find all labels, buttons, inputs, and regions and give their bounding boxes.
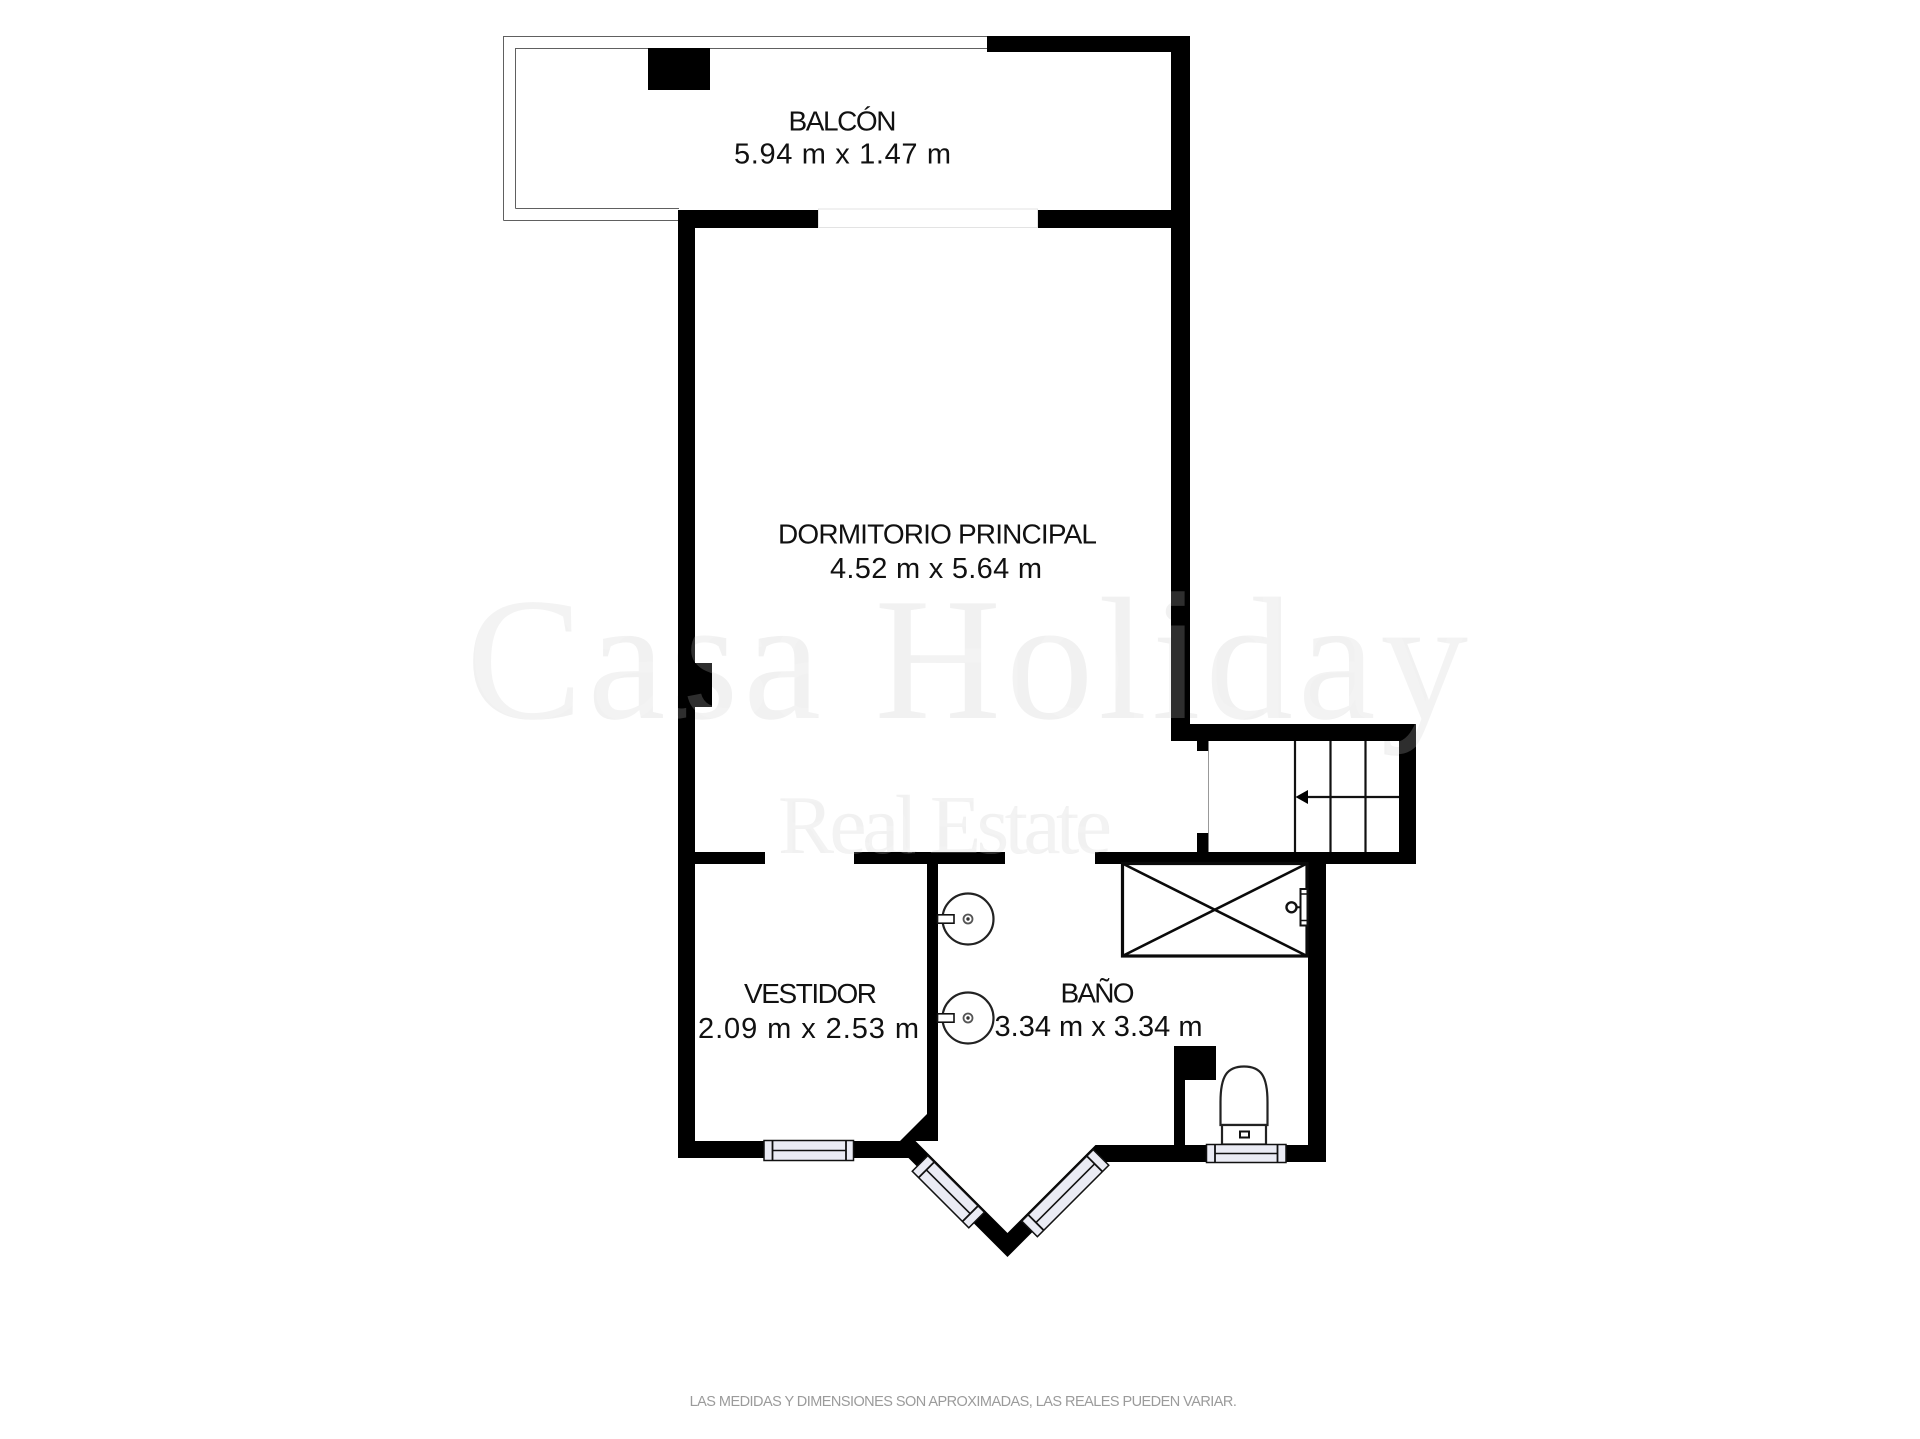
svg-text:2.09 m x 2.53 m: 2.09 m x 2.53 m: [698, 1013, 919, 1045]
svg-text:3.34 m x 3.34 m: 3.34 m x 3.34 m: [995, 1011, 1203, 1043]
svg-text:Casa Holiday: Casa Holiday: [466, 561, 1469, 756]
svg-text:Real Estate: Real Estate: [778, 777, 1112, 871]
svg-text:LAS MEDIDAS Y DIMENSIONES SON: LAS MEDIDAS Y DIMENSIONES SON APROXIMADA…: [690, 1394, 1237, 1410]
svg-text:5.94 m x 1.47 m: 5.94 m x 1.47 m: [734, 139, 951, 171]
svg-text:BAÑO: BAÑO: [1061, 978, 1135, 1009]
svg-text:VESTIDOR: VESTIDOR: [744, 978, 877, 1009]
svg-text:DORMITORIO PRINCIPAL: DORMITORIO PRINCIPAL: [778, 519, 1097, 550]
svg-text:BALCÓN: BALCÓN: [789, 106, 897, 137]
